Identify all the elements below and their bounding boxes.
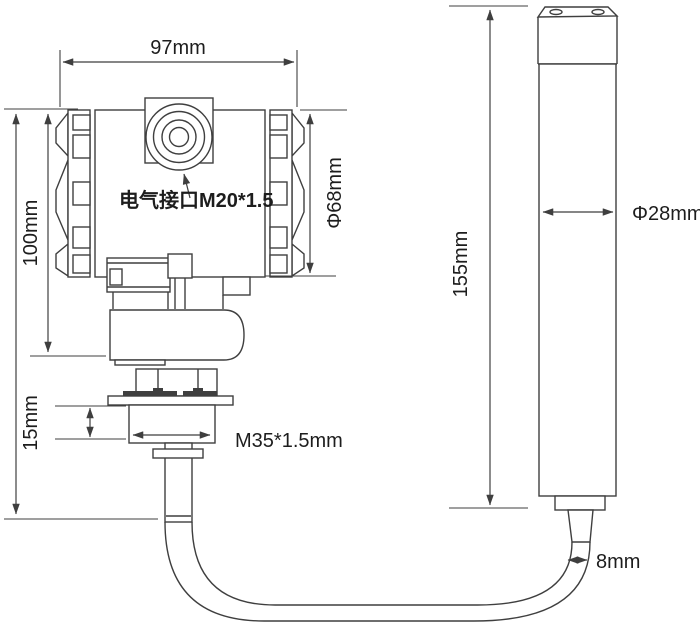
label-nut-height: 15mm bbox=[20, 395, 42, 451]
left-clamp-wedge bbox=[56, 244, 68, 276]
left-clamp-wedge bbox=[56, 160, 68, 240]
probe-cap bbox=[538, 16, 617, 64]
cable bbox=[165, 522, 590, 621]
label-probe-diameter: Φ28mm bbox=[632, 203, 700, 225]
transmitter-head-outline bbox=[56, 98, 304, 522]
cable-outer-line bbox=[165, 522, 590, 621]
right-clamp-slot bbox=[270, 135, 287, 158]
left-clamp-slot bbox=[73, 255, 90, 273]
left-clamp-slot bbox=[73, 227, 90, 248]
probe-cable-gland bbox=[568, 510, 593, 542]
washer bbox=[153, 449, 203, 458]
cable-inner-line bbox=[192, 522, 572, 605]
dimension-lines bbox=[4, 6, 613, 560]
label-cable-diameter: 8mm bbox=[596, 551, 640, 573]
right-clamp-slot bbox=[270, 255, 287, 273]
dimension-drawing-canvas: 97mm 100mm 电气接口M20*1.5 Φ68mm 15mm M35*1.… bbox=[0, 0, 700, 629]
electrical-port-ring bbox=[146, 104, 212, 170]
label-thread-spec: M35*1.5mm bbox=[235, 430, 343, 452]
left-clamp-slot bbox=[73, 115, 90, 130]
left-clamp-slot bbox=[73, 135, 90, 158]
gasket-strip bbox=[123, 391, 177, 396]
left-clamp-wedge bbox=[56, 113, 68, 156]
process-capsule bbox=[110, 310, 244, 360]
label-housing-width: 97mm bbox=[150, 37, 206, 59]
right-clamp-wedge bbox=[292, 244, 304, 276]
probe-outline bbox=[538, 7, 617, 542]
right-clamp-slot bbox=[270, 115, 287, 130]
right-clamp-wedge bbox=[292, 113, 304, 156]
probe-body bbox=[539, 64, 616, 496]
label-probe-length: 155mm bbox=[450, 231, 472, 298]
hex-nut bbox=[129, 405, 215, 443]
right-clamp-slot bbox=[270, 227, 287, 248]
technical-drawing: 97mm 100mm 电气接口M20*1.5 Φ68mm 15mm M35*1.… bbox=[0, 0, 700, 629]
capsule-ledge bbox=[115, 360, 165, 365]
right-clamp-wedge bbox=[292, 160, 304, 240]
flange-plate bbox=[108, 396, 233, 405]
housing-step bbox=[223, 277, 250, 295]
label-electrical-port: 电气接口M20*1.5 bbox=[119, 188, 274, 212]
terminal-block-detail bbox=[110, 269, 122, 285]
terminal-post-block bbox=[168, 254, 192, 278]
probe-step bbox=[555, 496, 605, 510]
label-housing-diameter: Φ68mm bbox=[324, 157, 346, 229]
left-clamp-slot bbox=[73, 182, 90, 205]
label-housing-height: 100mm bbox=[20, 200, 42, 267]
gasket-strip bbox=[183, 391, 217, 396]
